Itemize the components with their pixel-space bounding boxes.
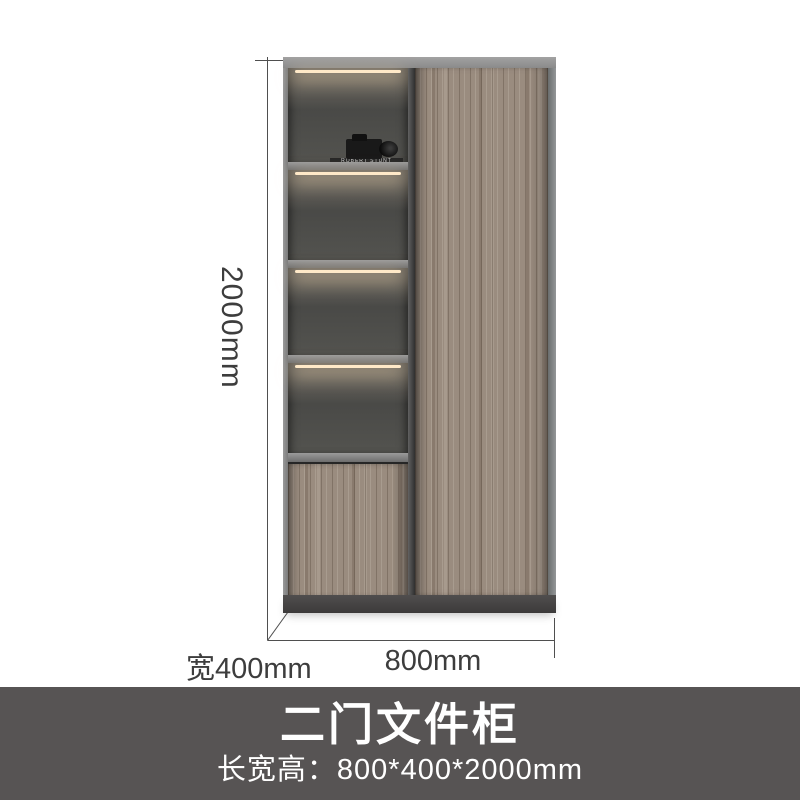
cabinet-lower-left-door (288, 462, 408, 597)
cabinet-right-door (415, 68, 548, 595)
product-title: 二门文件柜 (280, 702, 520, 747)
height-dimension-label: 2000mm (214, 266, 248, 402)
open-shelf-compartment-1: H G M A ROBERT STUNT (288, 68, 408, 162)
product-image-canvas: 2000mm 宽400mm 800mm H G M A ROBERT STUNT (0, 0, 800, 800)
product-dimensions-text: 长宽高：800*400*2000mm (217, 756, 583, 785)
cabinet-illustration: H G M A ROBERT STUNT (283, 57, 556, 613)
open-shelf-compartment-4 (288, 363, 408, 453)
product-info-banner: 二门文件柜 长宽高：800*400*2000mm (0, 687, 800, 800)
open-shelf-compartment-3 (288, 268, 408, 355)
cabinet-center-divider (408, 68, 415, 595)
decor-camera-lens (379, 141, 398, 157)
depth-dimension-label: 宽400mm (186, 645, 312, 687)
width-dimension-label: 800mm (377, 645, 489, 678)
decor-camera-body (346, 139, 382, 159)
depth-diagonal-line (268, 612, 289, 641)
cabinet-right-frame (548, 68, 556, 595)
cabinet-base-plinth (283, 595, 556, 613)
open-shelf-compartment-2 (288, 170, 408, 260)
decor-camera-viewfinder (352, 134, 367, 141)
